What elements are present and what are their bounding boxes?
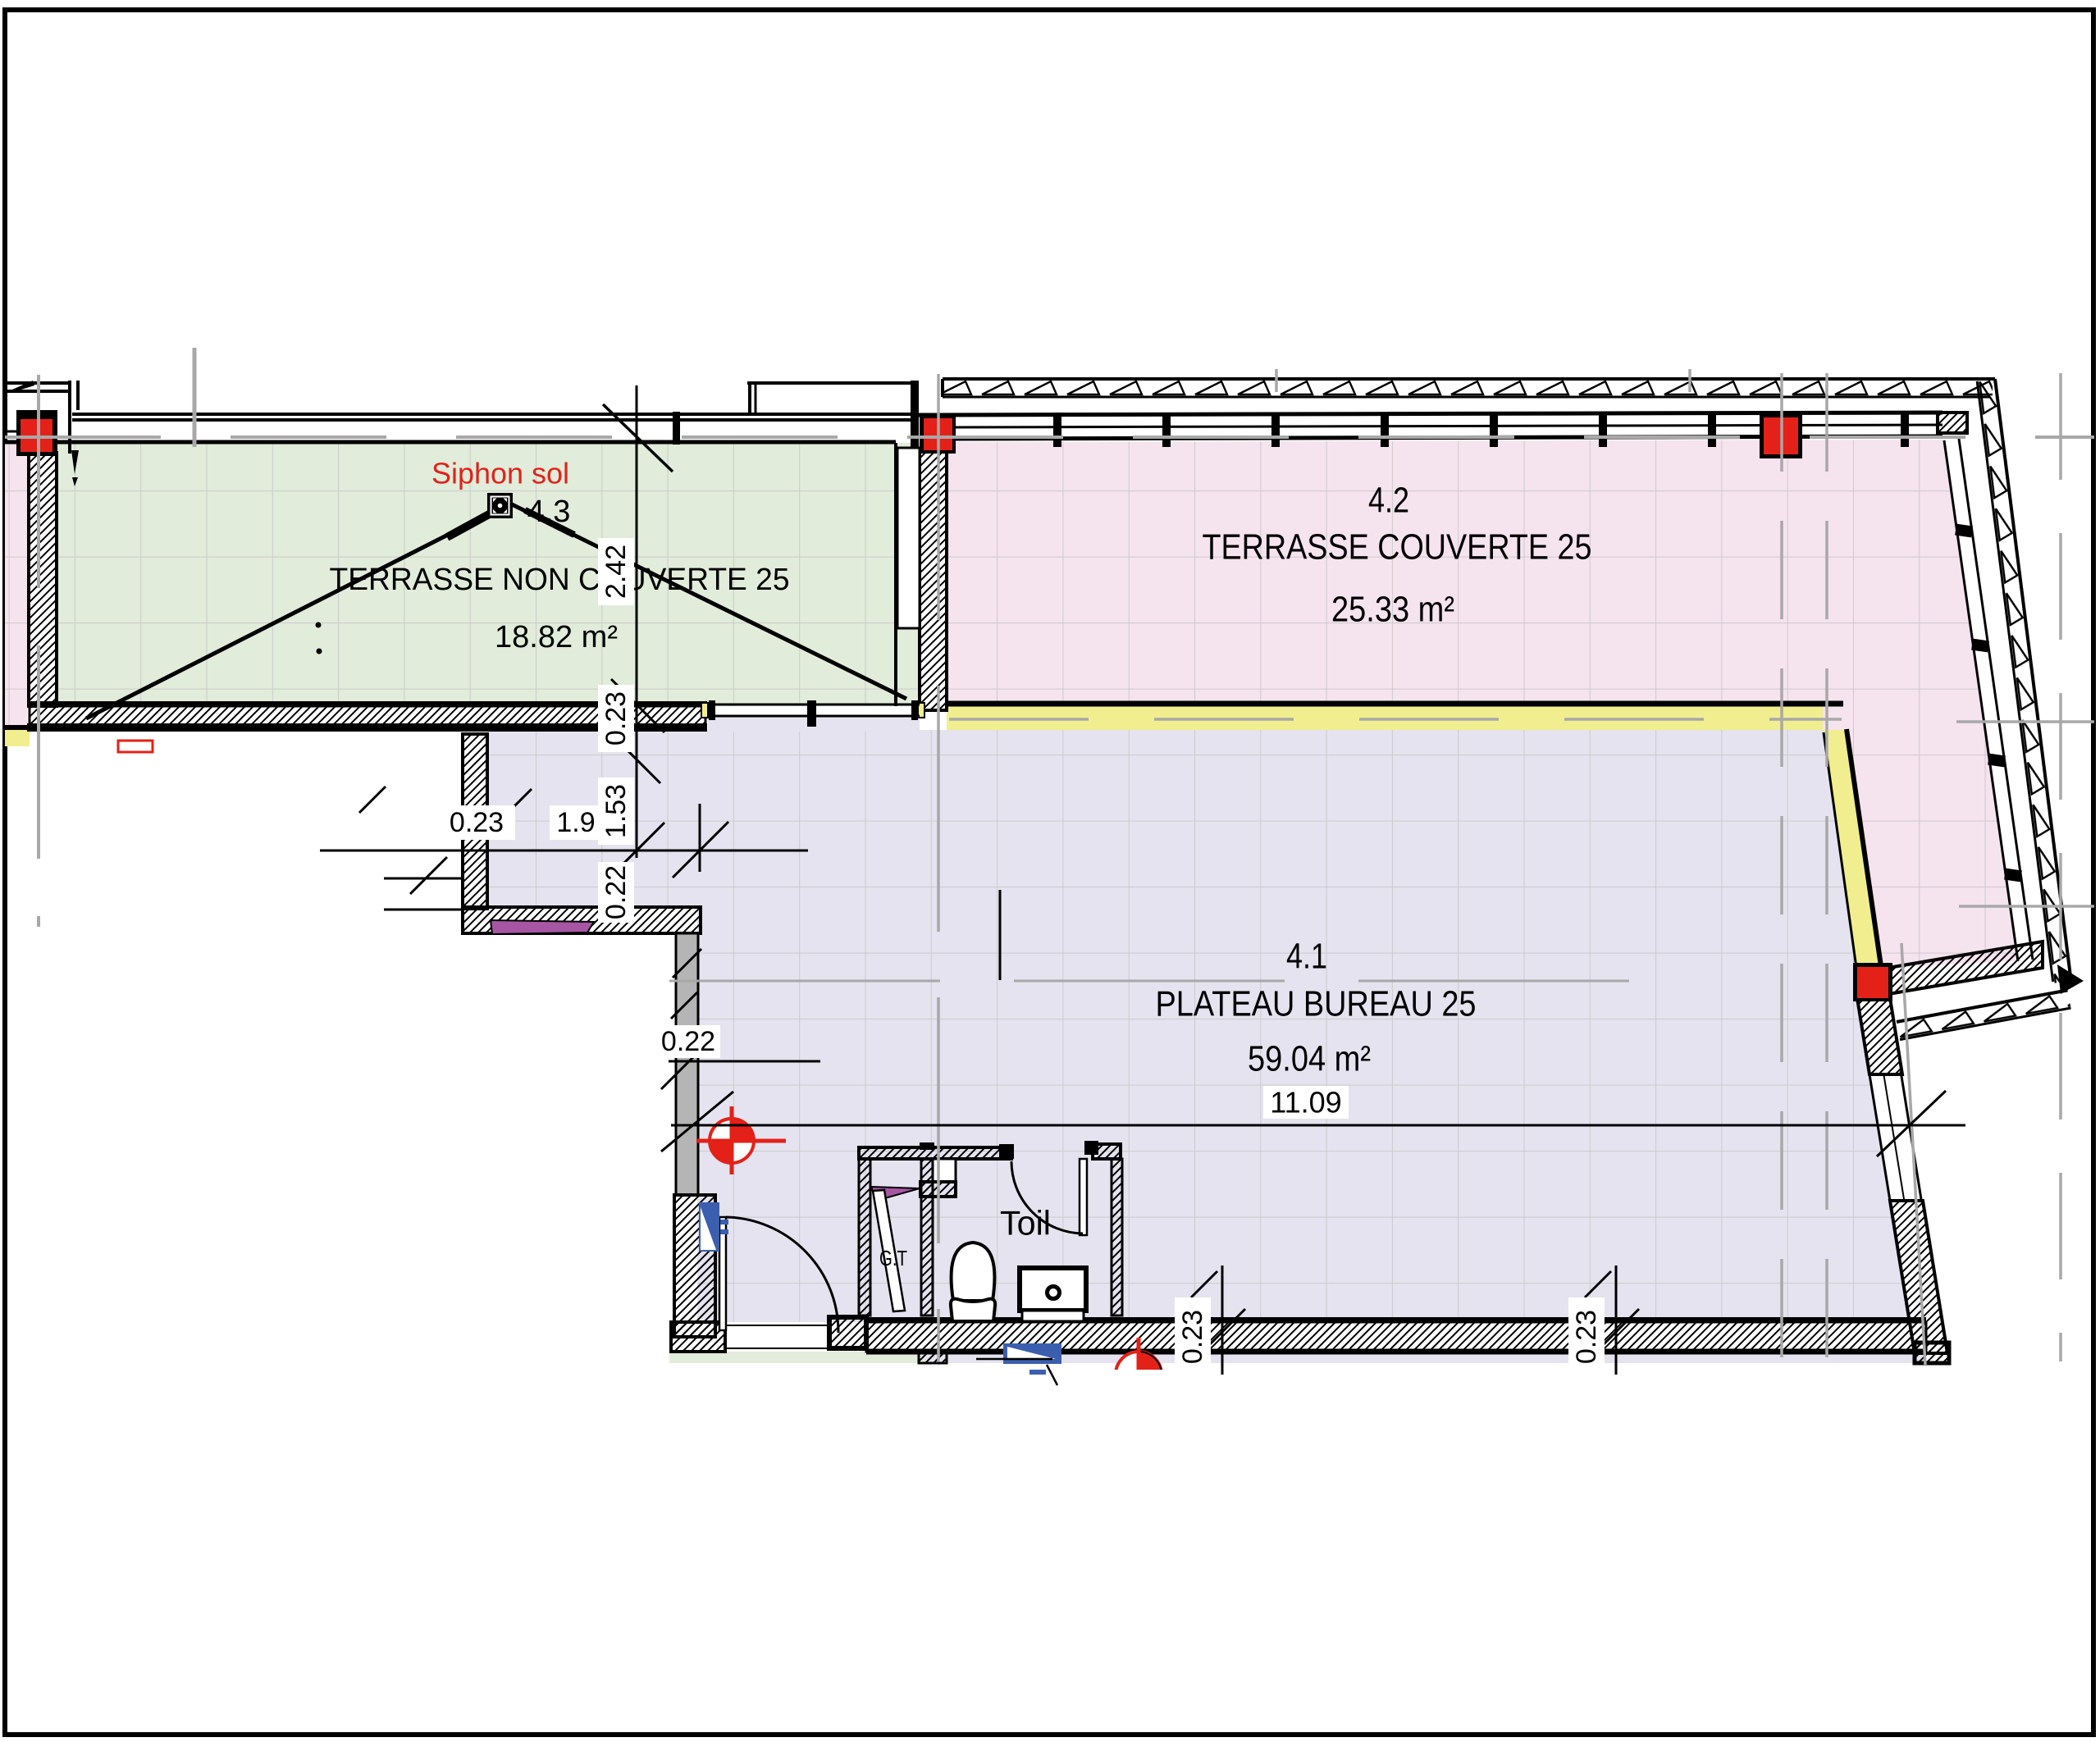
svg-text:TERRASSE COUVERTE 25: TERRASSE COUVERTE 25 bbox=[1203, 527, 1592, 568]
svg-text:1.9: 1.9 bbox=[556, 807, 595, 838]
svg-text:25.33 m²: 25.33 m² bbox=[1331, 590, 1454, 630]
svg-text:0.23: 0.23 bbox=[600, 691, 632, 746]
svg-text:4.3: 4.3 bbox=[527, 495, 571, 529]
svg-text:4.2: 4.2 bbox=[1368, 481, 1409, 521]
svg-text:1.53: 1.53 bbox=[600, 784, 632, 838]
svg-text:0.23: 0.23 bbox=[1177, 1310, 1208, 1364]
svg-text:4.1: 4.1 bbox=[1286, 937, 1327, 977]
svg-text:Siphon sol: Siphon sol bbox=[431, 457, 569, 490]
svg-text:PLATEAU BUREAU 25: PLATEAU BUREAU 25 bbox=[1156, 984, 1477, 1024]
svg-text:G.T: G.T bbox=[879, 1246, 907, 1270]
svg-text:TERRASSE NON COUVERTE 25: TERRASSE NON COUVERTE 25 bbox=[330, 563, 790, 597]
svg-text:0.22: 0.22 bbox=[600, 865, 632, 919]
svg-text:0.23: 0.23 bbox=[450, 807, 504, 838]
svg-text:59.04 m²: 59.04 m² bbox=[1248, 1039, 1371, 1079]
svg-text:Toil: Toil bbox=[1000, 1204, 1051, 1243]
svg-text:0.22: 0.22 bbox=[661, 1026, 715, 1057]
svg-text:0.23: 0.23 bbox=[1571, 1310, 1602, 1364]
svg-text:2.42: 2.42 bbox=[600, 545, 632, 599]
svg-text:11.09: 11.09 bbox=[1270, 1086, 1341, 1120]
svg-text:18.82 m²: 18.82 m² bbox=[495, 620, 618, 654]
